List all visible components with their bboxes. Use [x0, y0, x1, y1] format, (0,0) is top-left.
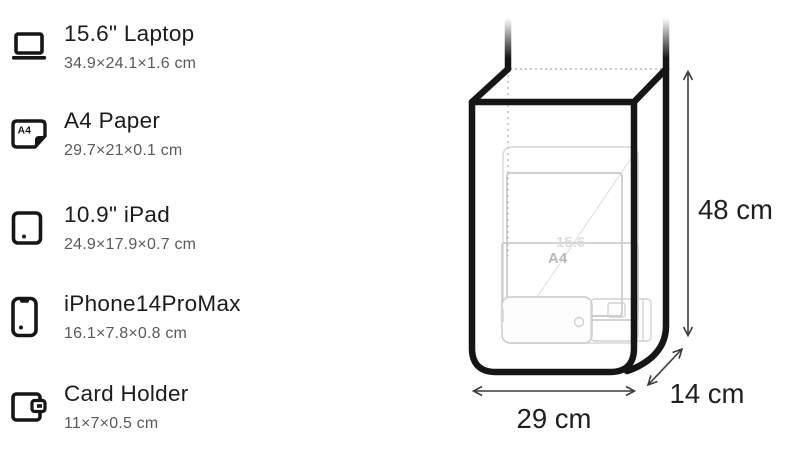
bag-top-right-edge — [634, 69, 666, 102]
list-item: A4 A4 Paper 29.7×21×0.1 cm — [10, 107, 182, 160]
list-item: iPhone14ProMax 16.1×7.8×0.8 cm — [10, 290, 241, 343]
item-title: 15.6" Laptop — [64, 20, 196, 47]
iphone-icon — [10, 296, 54, 338]
card-holder-icon — [10, 391, 54, 423]
item-dimensions: 16.1×7.8×0.8 cm — [64, 324, 241, 343]
item-title: Card Holder — [64, 380, 189, 407]
inner-laptop-label: 15.6 — [556, 234, 585, 251]
inner-iphone-outline — [501, 297, 592, 343]
item-title: iPhone14ProMax — [64, 290, 241, 317]
item-list: 15.6" Laptop 34.9×24.1×1.6 cm A4 A4 Pape… — [0, 0, 430, 455]
item-dimensions: 34.9×24.1×1.6 cm — [64, 54, 196, 73]
width-arrow — [474, 387, 635, 396]
ipad-icon — [10, 211, 54, 245]
item-dimensions: 29.7×21×0.1 cm — [64, 141, 182, 160]
depth-dimension-label: 14 cm — [670, 378, 745, 409]
a4-paper-icon: A4 — [10, 118, 54, 150]
item-title: 10.9" iPad — [64, 201, 196, 228]
inner-a4-label: A4 — [548, 250, 568, 267]
laptop-icon — [10, 31, 54, 63]
width-dimension-label: 29 cm — [517, 403, 592, 434]
item-title: A4 Paper — [64, 107, 182, 134]
bag-top-left-edge — [472, 69, 508, 102]
list-item: Card Holder 11×7×0.5 cm — [10, 380, 189, 433]
a4-icon-label: A4 — [18, 124, 32, 136]
height-dimension-label: 48 cm — [698, 194, 773, 225]
list-item: 15.6" Laptop 34.9×24.1×1.6 cm — [10, 20, 196, 73]
list-item: 10.9" iPad 24.9×17.9×0.7 cm — [10, 201, 196, 254]
bag-dimension-diagram: 15.6 A4 — [430, 0, 800, 455]
height-arrow — [684, 72, 693, 336]
item-dimensions: 11×7×0.5 cm — [64, 414, 189, 433]
item-dimensions: 24.9×17.9×0.7 cm — [64, 235, 196, 254]
